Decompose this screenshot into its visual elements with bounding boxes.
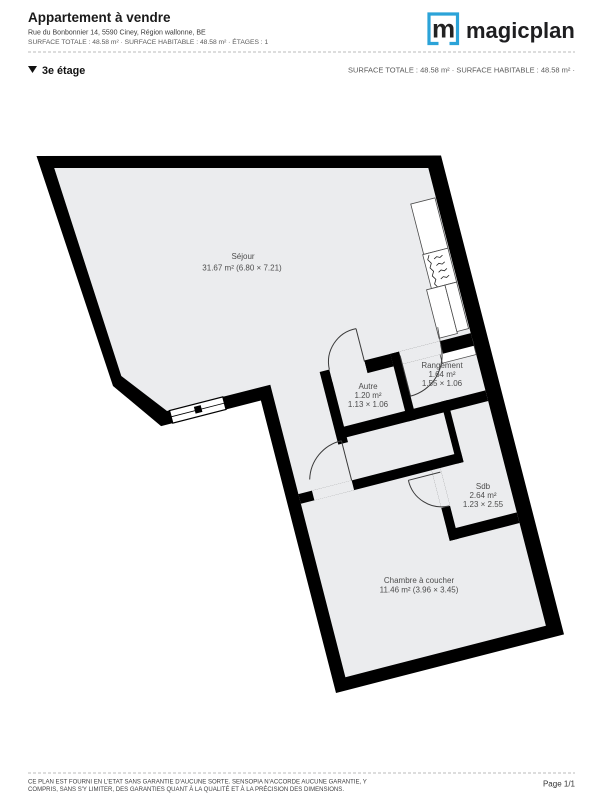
svg-text:Page 1/1: Page 1/1: [543, 780, 576, 789]
svg-text:SURFACE TOTALE : 48.58 m² · SU: SURFACE TOTALE : 48.58 m² · SURFACE HABI…: [28, 37, 268, 46]
svg-text:CE PLAN EST FOURNI EN L'ETAT S: CE PLAN EST FOURNI EN L'ETAT SANS GARANT…: [28, 780, 367, 786]
svg-text:31.67 m² (6.80 × 7.21): 31.67 m² (6.80 × 7.21): [202, 264, 282, 273]
svg-text:Séjour: Séjour: [231, 252, 254, 261]
svg-text:Appartement à vendre: Appartement à vendre: [28, 10, 171, 25]
svg-text:m: m: [432, 14, 455, 44]
svg-text:1.13 × 1.06: 1.13 × 1.06: [348, 400, 389, 409]
svg-text:1.23 × 2.55: 1.23 × 2.55: [463, 500, 504, 509]
svg-text:1.64 m²: 1.64 m²: [428, 370, 455, 379]
svg-text:1.55 × 1.06: 1.55 × 1.06: [422, 379, 463, 388]
svg-text:SURFACE TOTALE : 48.58 m² · SU: SURFACE TOTALE : 48.58 m² · SURFACE HABI…: [348, 66, 575, 75]
svg-text:Sdb: Sdb: [476, 482, 491, 491]
svg-text:1.20 m²: 1.20 m²: [354, 391, 381, 400]
svg-text:3e étage: 3e étage: [42, 65, 85, 77]
svg-text:2.64 m²: 2.64 m²: [469, 491, 496, 500]
svg-text:Rue du Bonbonnier 14, 5590 Cin: Rue du Bonbonnier 14, 5590 Ciney, Région…: [28, 30, 206, 37]
svg-text:COMPRIS, SANS S'Y LIMITER, DES: COMPRIS, SANS S'Y LIMITER, DES GARANTIES…: [28, 786, 344, 793]
svg-text:Autre: Autre: [358, 382, 378, 391]
svg-text:magicplan: magicplan: [466, 18, 575, 43]
svg-text:Chambre à coucher: Chambre à coucher: [384, 576, 455, 585]
svg-text:11.46 m² (3.96 × 3.45): 11.46 m² (3.96 × 3.45): [380, 586, 459, 595]
svg-text:Rangement: Rangement: [421, 361, 463, 370]
